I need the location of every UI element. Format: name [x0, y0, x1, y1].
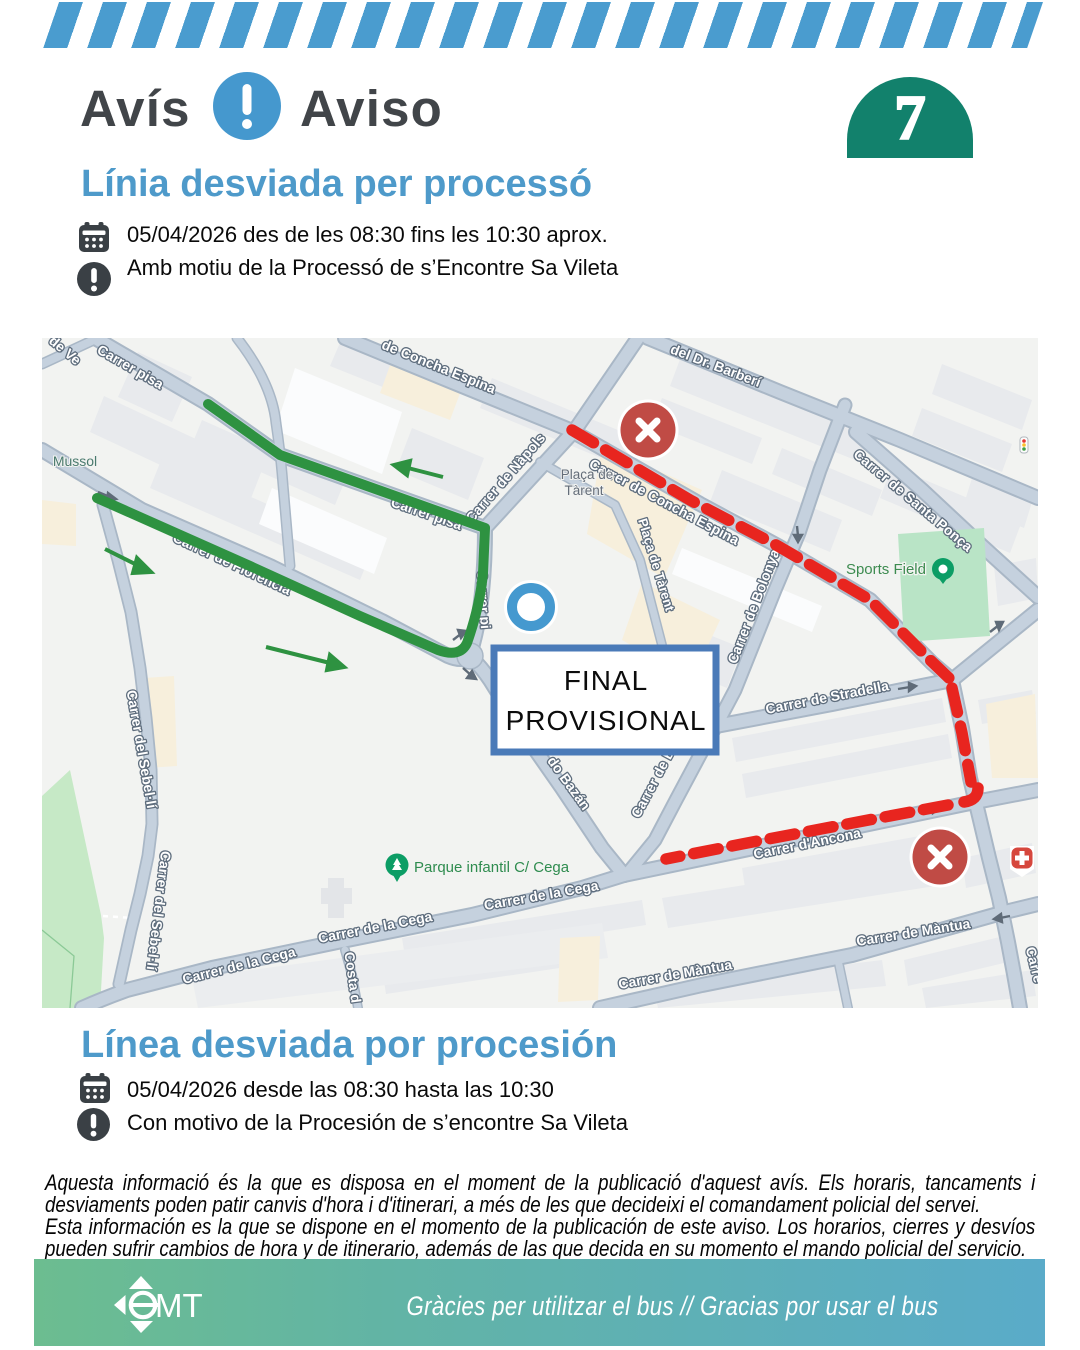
svg-text:Parque infantil C/ Cega: Parque infantil C/ Cega: [414, 859, 570, 876]
svg-text:Mussol: Mussol: [53, 453, 97, 469]
svg-text:FINAL: FINAL: [564, 665, 648, 696]
svg-text:Sports Field: Sports Field: [846, 561, 926, 578]
svg-text:Plaça de: Plaça de: [561, 467, 614, 482]
svg-text:PROVISIONAL: PROVISIONAL: [506, 705, 707, 736]
svg-text:Tàrent: Tàrent: [564, 483, 603, 498]
